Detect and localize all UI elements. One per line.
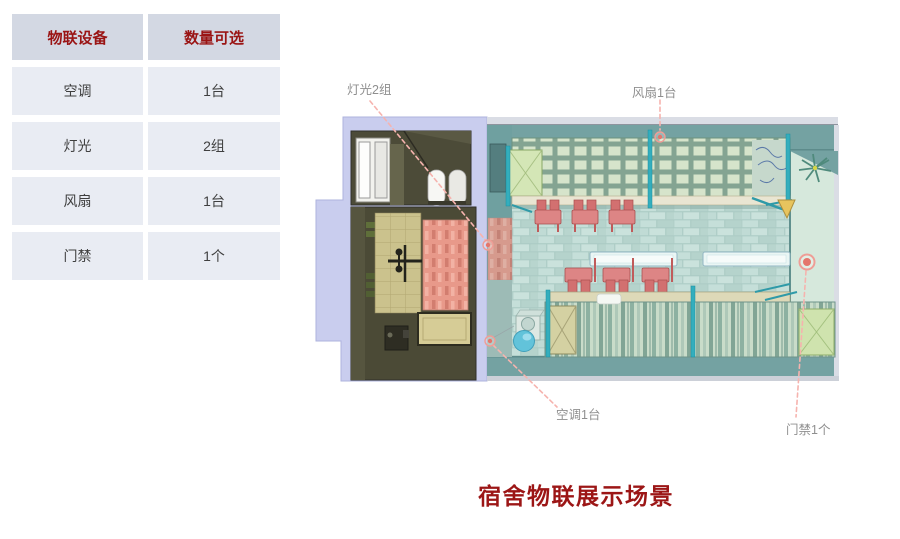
pink-tile-wall xyxy=(423,220,468,310)
dorm-room xyxy=(487,117,839,381)
cell-device: 门禁 xyxy=(12,232,143,280)
desk xyxy=(703,252,790,266)
water-jug xyxy=(514,331,535,352)
cell-device: 风扇 xyxy=(12,177,143,225)
balcony-room xyxy=(351,131,471,205)
bottom-wall-band xyxy=(487,357,834,376)
arch-window xyxy=(428,170,445,205)
marker-light-icon xyxy=(483,240,493,250)
woven-mattress xyxy=(548,306,576,354)
left-wing xyxy=(316,117,487,381)
scene-title: 宿舍物联展示场景 xyxy=(478,477,674,511)
table-row: 灯光 2组 xyxy=(12,122,281,170)
callout-label-fan: 风扇1台 xyxy=(632,82,676,101)
arch-window xyxy=(449,170,466,205)
header-qty: 数量可选 xyxy=(148,14,280,60)
table-row: 门禁 1个 xyxy=(12,232,281,280)
floorplan-illustration xyxy=(300,60,900,460)
bath-mat xyxy=(418,313,471,345)
callout-label-ac: 空调1台 xyxy=(556,404,600,423)
folded-bedding xyxy=(509,150,542,196)
wall-picture xyxy=(490,144,506,192)
marker-ac-icon xyxy=(485,336,495,346)
top-bunk-bed xyxy=(506,130,792,212)
cell-qty: 1台 xyxy=(148,67,280,115)
cell-qty: 1台 xyxy=(148,177,280,225)
callout-label-door: 门禁1个 xyxy=(786,419,830,438)
table-row: 空调 1台 xyxy=(12,67,281,115)
folded-bedding xyxy=(799,309,834,355)
cell-qty: 1个 xyxy=(148,232,280,280)
marker-fan-icon xyxy=(655,132,665,142)
table-row: 风扇 1台 xyxy=(12,177,281,225)
cell-device: 灯光 xyxy=(12,122,143,170)
cell-device: 空调 xyxy=(12,67,143,115)
header-device: 物联设备 xyxy=(12,14,143,60)
marker-door-icon xyxy=(800,255,815,270)
device-table: 物联设备 数量可选 空调 1台 灯光 2组 风扇 1台 门禁 1个 xyxy=(12,14,281,287)
slide: 物联设备 数量可选 空调 1台 灯光 2组 风扇 1台 门禁 1个 xyxy=(0,0,900,539)
bathroom xyxy=(351,207,476,380)
bathroom-cabinet xyxy=(385,326,409,350)
pillow xyxy=(597,294,621,304)
callout-label-light: 灯光2组 xyxy=(347,79,391,98)
table-header-row: 物联设备 数量可选 xyxy=(12,14,281,60)
cell-qty: 2组 xyxy=(148,122,280,170)
